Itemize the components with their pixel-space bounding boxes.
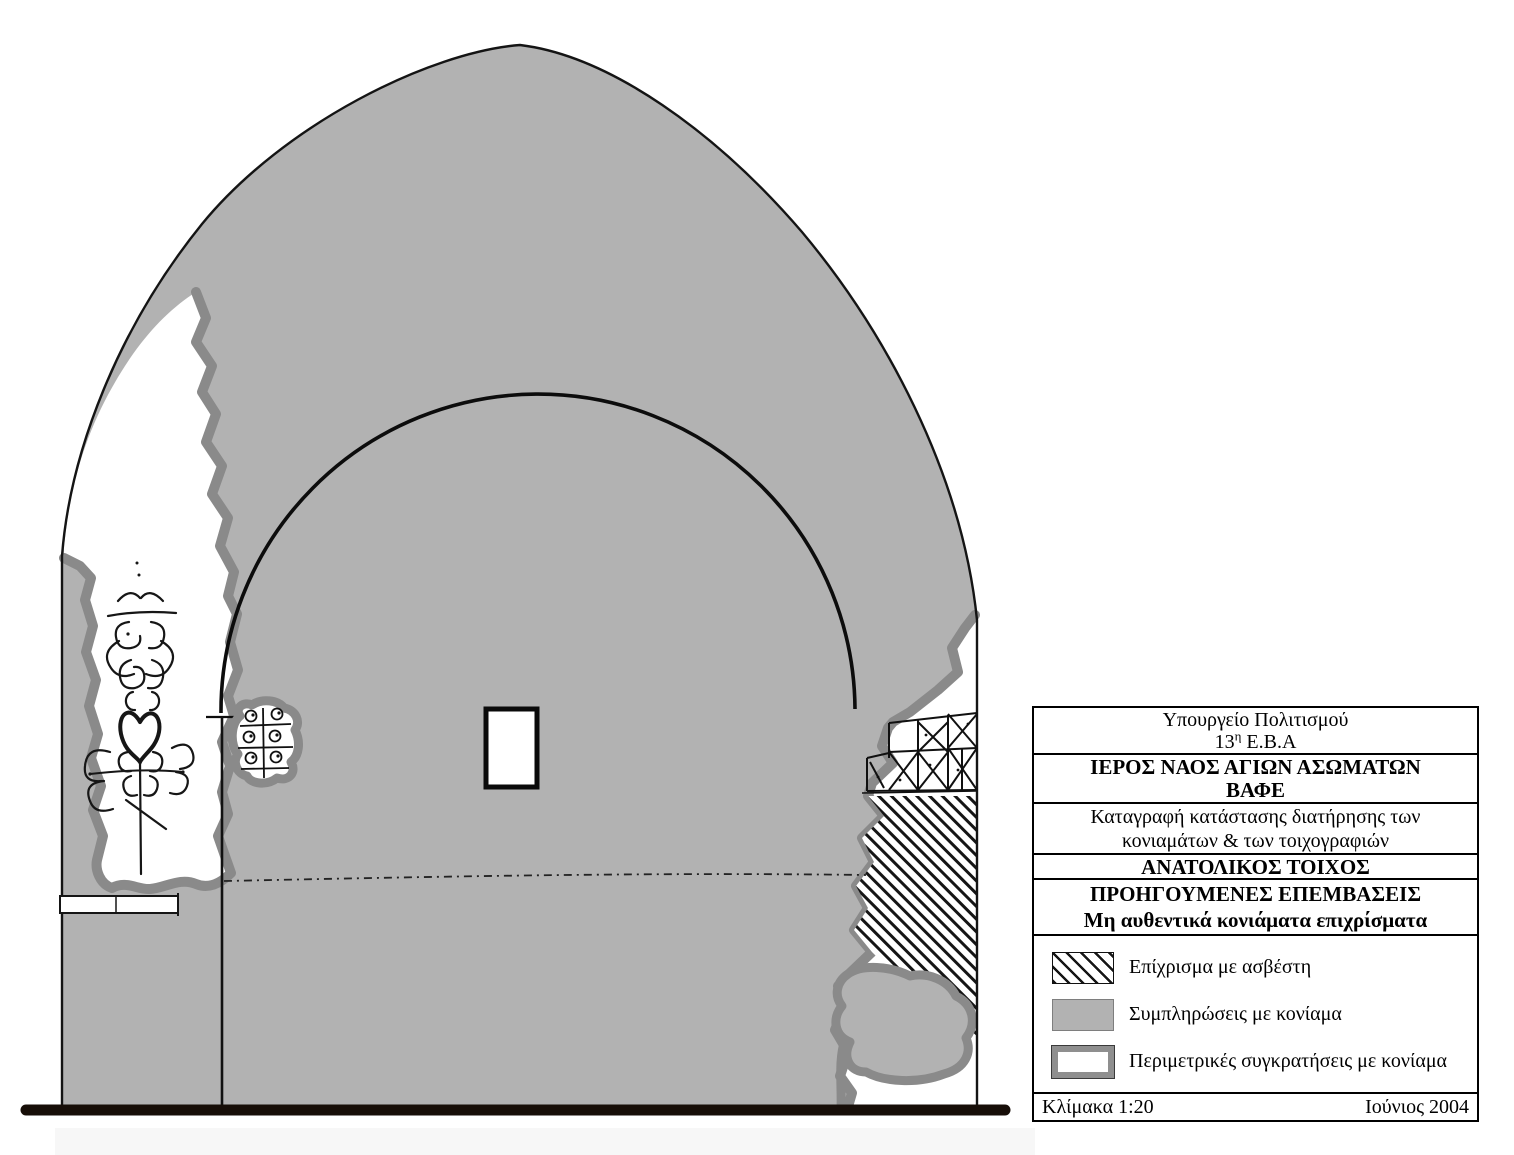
mortar-fill-gray-swatch xyxy=(1052,999,1114,1031)
church-location: ΒΑΦΕ xyxy=(1034,779,1477,802)
scanned-conservation-sheet: Υπουργείο Πολιτισμού 13η Ε.Β.Α ΙΕΡΟΣ ΝΑΟ… xyxy=(0,0,1514,1155)
description-line2: κονιαμάτων & των τοιχογραφιών xyxy=(1034,829,1477,853)
legend-item-mortar-fill: Συμπληρώσεις με κονίαμα xyxy=(1052,991,1477,1038)
shelf xyxy=(60,893,178,916)
church-row: ΙΕΡΟΣ ΝΑΟΣ ΑΓΙΩΝ ΑΣΩΜΑΤΩΝ ΒΑΦΕ xyxy=(1034,755,1477,804)
ephorate-acronym: Ε.Β.Α xyxy=(1241,731,1296,753)
ministry-name: Υπουργείο Πολιτισμού xyxy=(1034,709,1477,731)
legend-item-perimeter-retention: Περιμετρικές συγκρατήσεις με κονίαμα xyxy=(1052,1038,1477,1085)
fresco-fragment-left xyxy=(232,701,298,783)
legend-area: Επίχρισμα με ασβέστη Συμπληρώσεις με κον… xyxy=(1034,936,1477,1094)
legend-label: Συμπληρώσεις με κονίαμα xyxy=(1129,1003,1342,1026)
lime-plaster-hatch-swatch xyxy=(1052,952,1114,984)
description-row: Καταγραφή κατάστασης διατήρησης των κονι… xyxy=(1034,804,1477,855)
ephorate-number: 13 xyxy=(1215,731,1235,753)
mortar-blob-stem xyxy=(841,1040,845,1110)
scan-artifact-strip xyxy=(55,1128,1035,1155)
legend-label: Επίχρισμα με ασβέστη xyxy=(1129,956,1311,979)
date-label: Ιούνιος 2004 xyxy=(1365,1096,1469,1119)
section-line1: ΠΡΟΗΓΟΥΜΕΝΕΣ ΕΠΕΜΒΑΣΕΙΣ xyxy=(1034,881,1477,907)
church-name: ΙΕΡΟΣ ΝΑΟΣ ΑΓΙΩΝ ΑΣΩΜΑΤΩΝ xyxy=(1034,756,1477,779)
wall-name-row: ΑΝΑΤΟΛΙΚΟΣ ΤΟΙΧΟΣ xyxy=(1034,855,1477,880)
perimeter-retention-outline-swatch xyxy=(1052,1046,1114,1078)
legend-label: Περιμετρικές συγκρατήσεις με κονίαμα xyxy=(1129,1050,1447,1073)
ministry-row: Υπουργείο Πολιτισμού 13η Ε.Β.Α xyxy=(1034,708,1477,755)
section-row: ΠΡΟΗΓΟΥΜΕΝΕΣ ΕΠΕΜΒΑΣΕΙΣ Μη αυθεντικά κον… xyxy=(1034,880,1477,936)
wall-name: ΑΝΑΤΟΛΙΚΟΣ ΤΟΙΧΟΣ xyxy=(1034,856,1477,878)
panel-footer: Κλίμακα 1:20 Ιούνιος 2004 xyxy=(1034,1094,1477,1120)
scale-label: Κλίμακα 1:20 xyxy=(1042,1096,1154,1119)
window-niche xyxy=(486,709,537,787)
title-block-panel: Υπουργείο Πολιτισμού 13η Ε.Β.Α ΙΕΡΟΣ ΝΑΟ… xyxy=(1032,706,1479,1122)
description-line1: Καταγραφή κατάστασης διατήρησης των xyxy=(1034,805,1477,829)
legend-item-lime-plaster: Επίχρισμα με ασβέστη xyxy=(1052,944,1477,991)
mortar-fill-blob xyxy=(836,967,972,1080)
section-line2: Μη αυθεντικά κονιάματα επιχρίσματα xyxy=(1034,907,1477,933)
ephorate-name: 13η Ε.Β.Α xyxy=(1034,731,1477,753)
